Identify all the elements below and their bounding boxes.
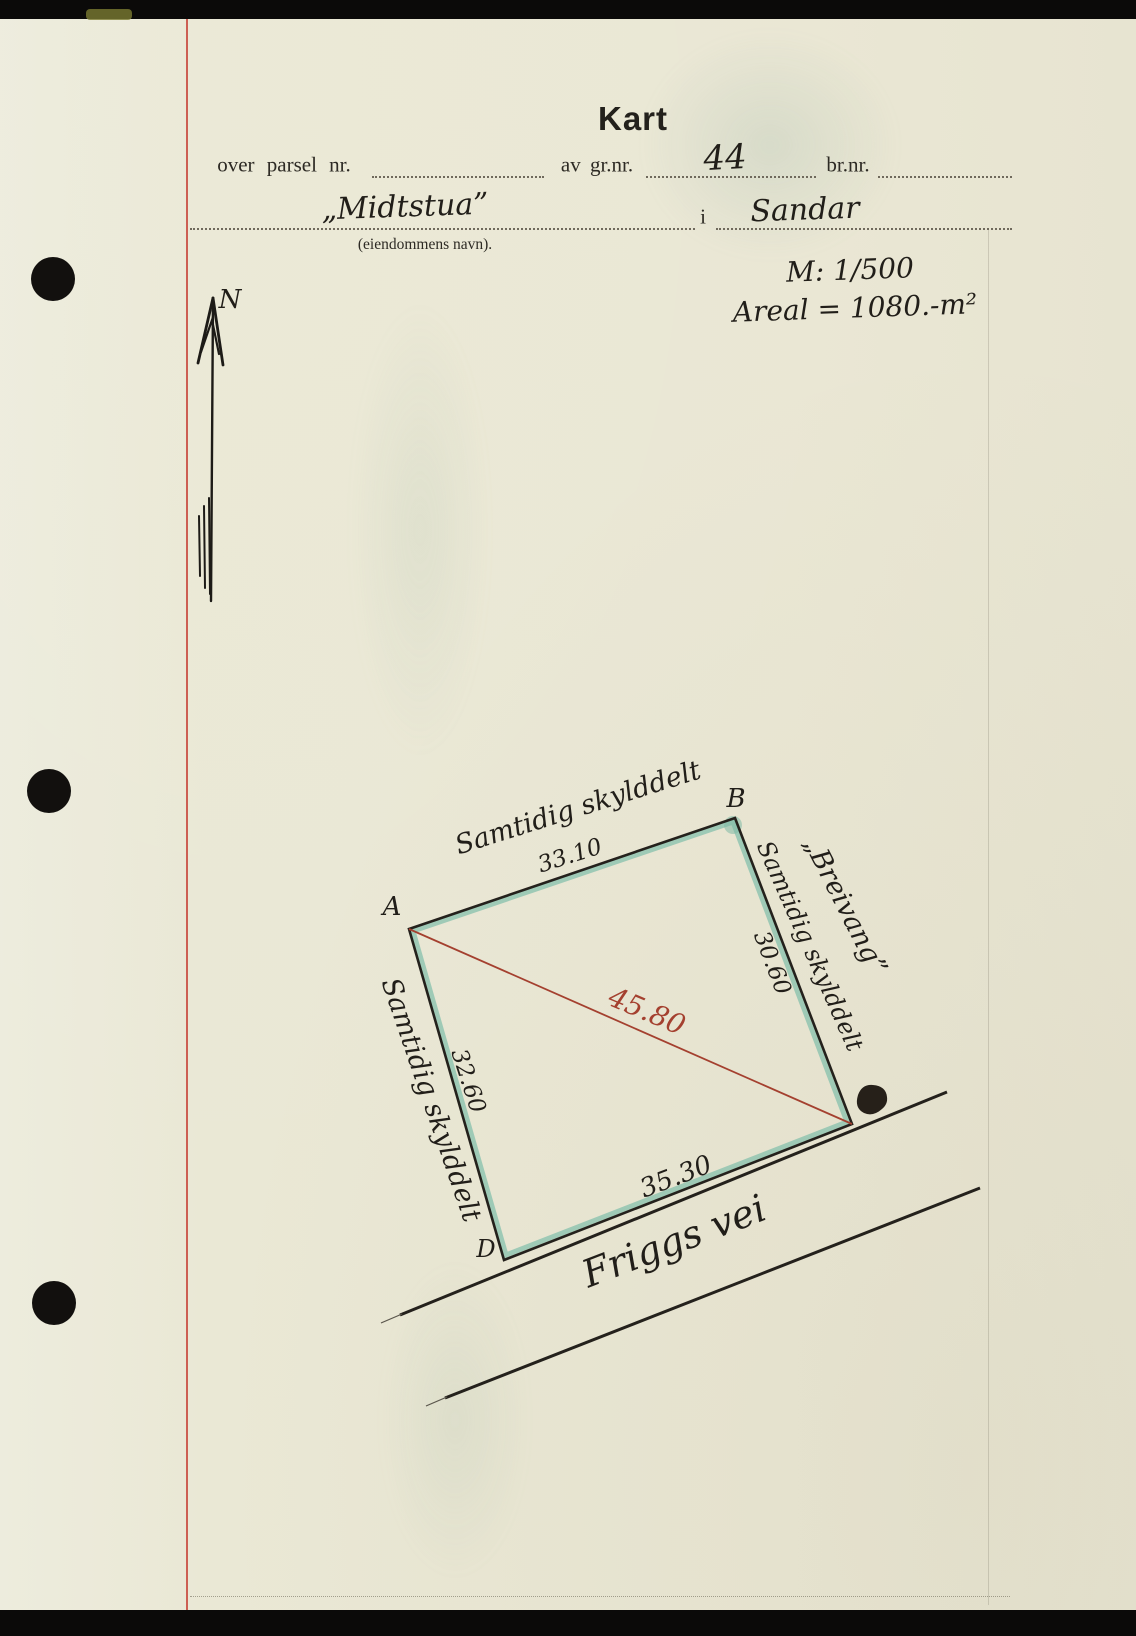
corner-label-b: B	[726, 784, 745, 814]
road-lower-extension	[426, 1397, 447, 1406]
scanned-map-page: Kart over parsel nr. av gr.nr. 44 br.nr.…	[0, 0, 1136, 1636]
road-upper-extension	[381, 1314, 402, 1323]
north-label: N	[219, 285, 242, 315]
north-arrow	[198, 298, 223, 601]
corner-label-a: A	[383, 892, 402, 922]
ink-blot	[857, 1085, 887, 1114]
corner-label-d: D	[476, 1235, 495, 1263]
